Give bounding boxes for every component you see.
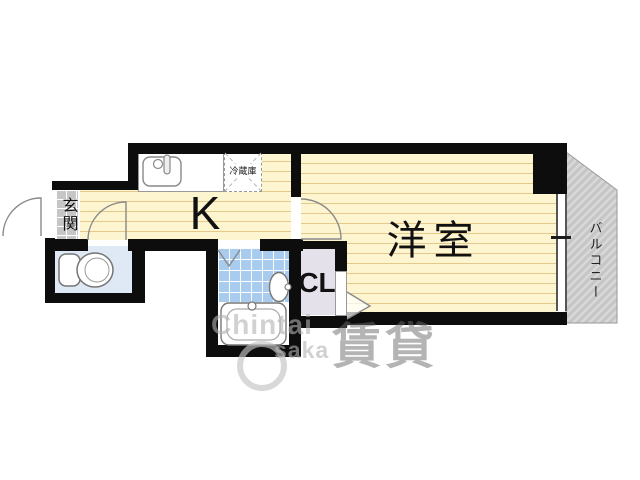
western-room-label: 洋室: [363, 214, 497, 260]
entrance-door-swing: [3, 198, 41, 236]
wall: [301, 241, 347, 249]
bathroom-tile-floor: [218, 248, 289, 302]
window-center-rail: [551, 236, 571, 239]
entrance-label: 玄関: [57, 191, 78, 238]
balcony-label: バルコニー: [583, 206, 607, 316]
refrigerator-label: 冷蔵庫: [224, 164, 262, 177]
wall: [128, 239, 218, 251]
closet-label: CL: [296, 266, 338, 300]
balcony-window: [556, 194, 567, 311]
wall: [52, 181, 138, 190]
toilet-room-floor: [55, 246, 132, 293]
watermark-chintai-kanji: 賃貸: [332, 307, 438, 378]
watermark-osaka: saka: [274, 337, 329, 364]
wall: [291, 143, 301, 197]
wall: [45, 293, 145, 303]
wall: [533, 143, 567, 194]
wall: [132, 246, 145, 293]
wall: [128, 143, 567, 154]
kitchen-label: K: [180, 188, 230, 238]
exterior-mask: [80, 152, 128, 182]
wall: [52, 239, 88, 251]
floorplan-canvas: K 洋室 CL 玄関 バルコニー 冷蔵庫 Chintai saka 賃貸: [0, 0, 640, 480]
